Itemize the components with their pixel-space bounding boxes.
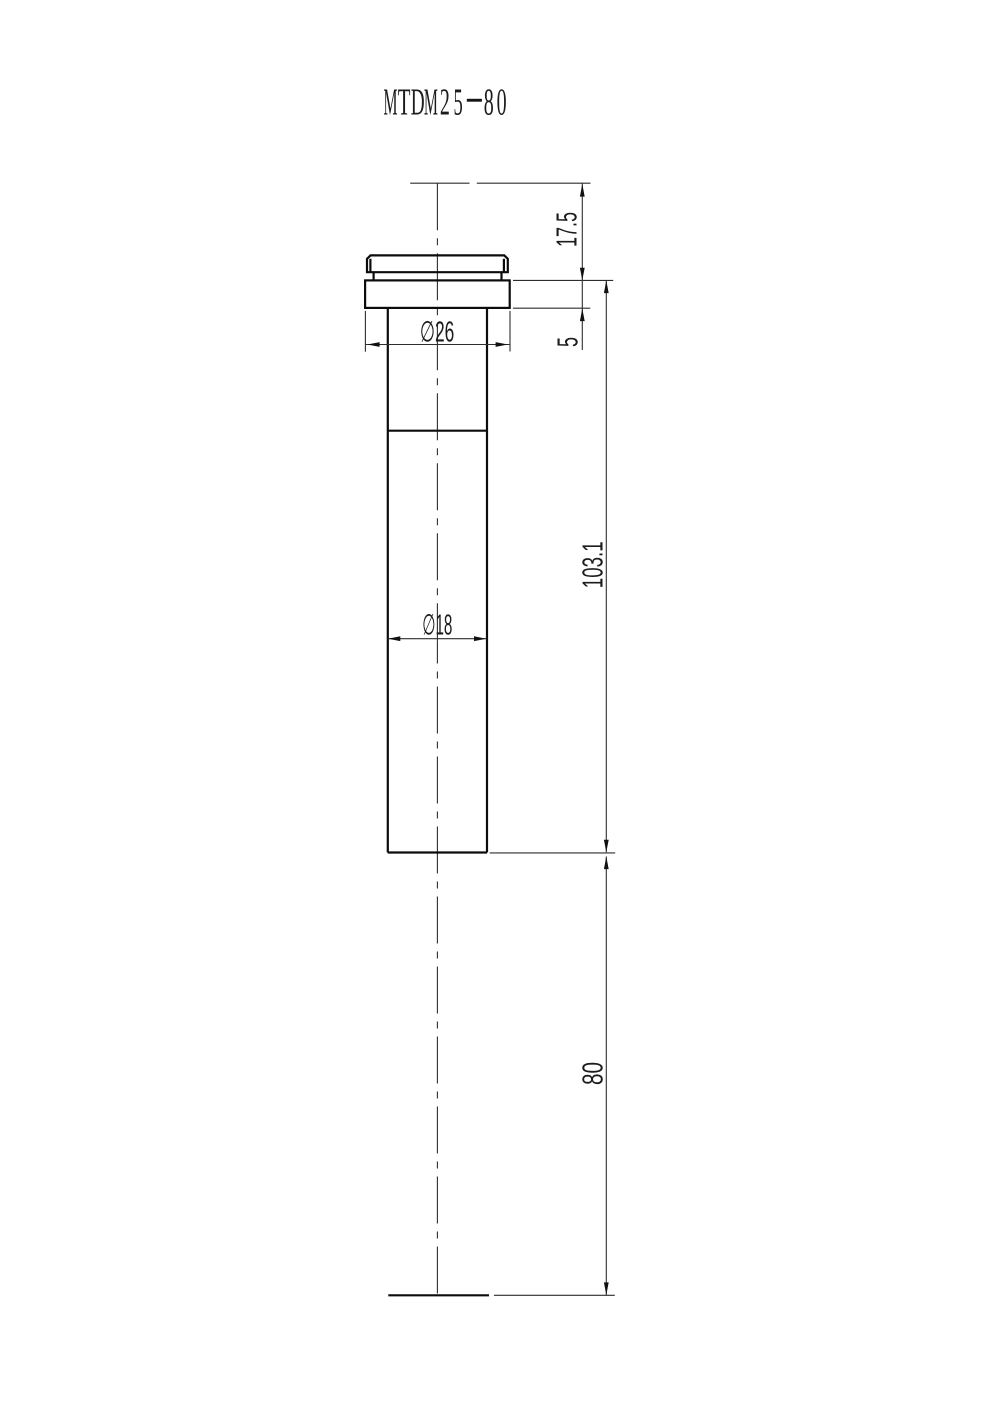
svg-text:0: 0 [497, 80, 507, 123]
svg-text:8: 8 [484, 80, 494, 123]
svg-text:80: 80 [577, 1062, 609, 1085]
svg-text:∅18: ∅18 [422, 610, 452, 642]
svg-text:D: D [411, 80, 425, 123]
svg-text:5: 5 [553, 337, 585, 347]
svg-text:M: M [383, 82, 397, 124]
svg-text:2: 2 [440, 80, 450, 123]
svg-text:M: M [424, 82, 438, 124]
svg-text:17.5: 17.5 [552, 212, 584, 247]
svg-text:T: T [398, 79, 411, 123]
svg-text:∅26: ∅26 [420, 317, 454, 349]
svg-text:103.1: 103.1 [578, 541, 610, 588]
svg-text:5: 5 [453, 80, 462, 123]
